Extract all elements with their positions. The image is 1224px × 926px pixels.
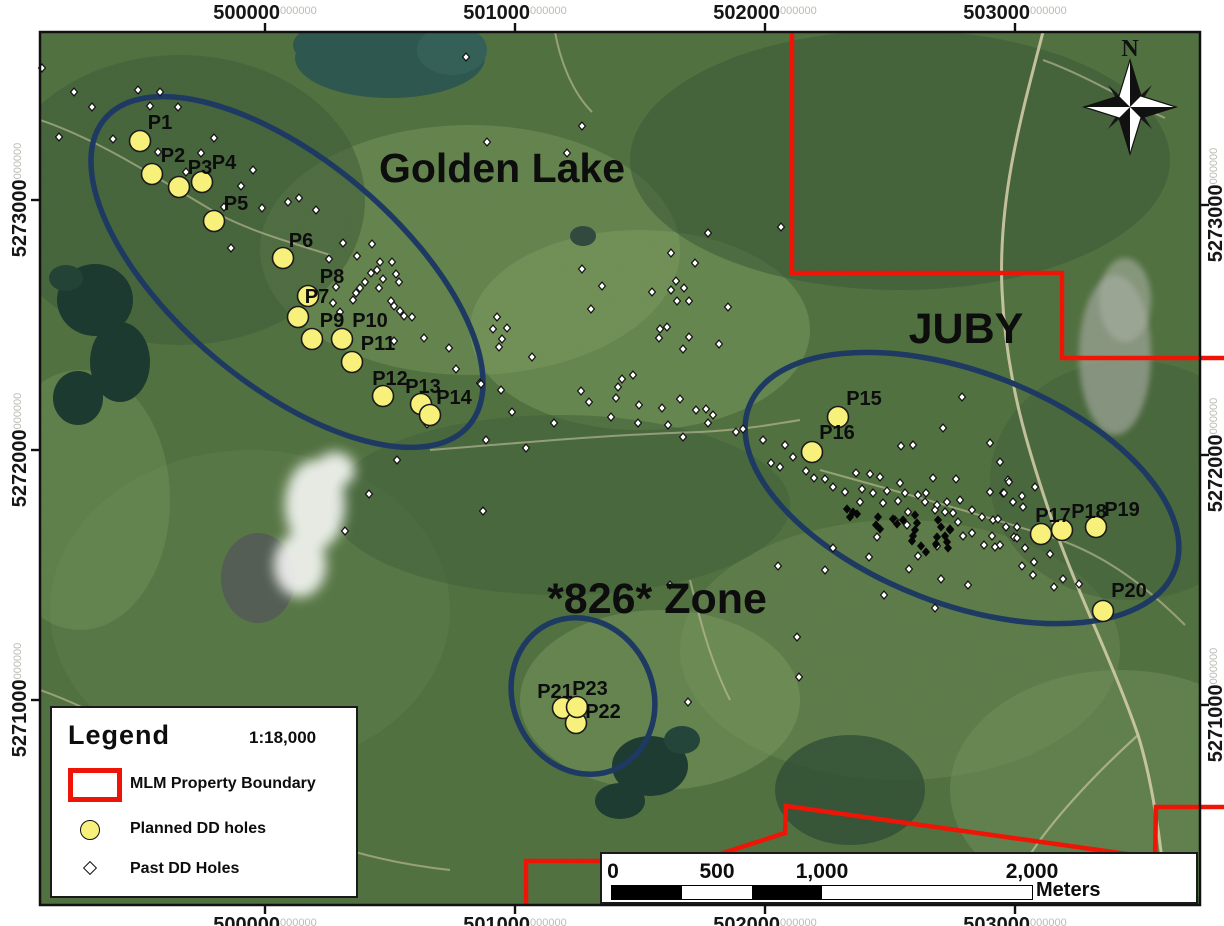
planned-hole-label-P6: P6 [289,230,313,252]
scale-bar-segment [752,886,822,899]
planned-hole-label-P16: P16 [819,422,855,444]
planned-hole-label-P22: P22 [585,701,621,723]
planned-hole-label-P11: P11 [361,333,395,355]
planned-hole-label-P3: P3 [188,157,212,179]
scale-bar-segment [822,886,1032,899]
planned-hole-label-P1: P1 [148,112,172,134]
map-scale-ratio: 1:18,000 [249,728,316,748]
planned-hole-label-P14: P14 [436,387,472,409]
planned-hole-P5 [204,211,225,232]
scale-bar-label: 1,000 [796,860,849,884]
north-label: N [1121,36,1139,62]
planned-hole-label-P20: P20 [1111,580,1147,602]
legend-item-label: MLM Property Boundary [130,775,316,793]
planned-hole-label-P18: P18 [1071,501,1107,523]
grid-label-right: 5272000000000 [1205,398,1224,513]
planned-hole-label-P10: P10 [352,310,388,332]
legend-item-planned: Planned DD holes [66,818,346,844]
scale-bar: Meters 05001,0002,000 [600,852,1198,904]
scale-bar-segments [611,885,1033,900]
scale-bar-label: 500 [699,860,734,884]
scale-bar-label: 2,000 [1006,860,1059,884]
grid-label-right: 5271000000000 [1205,648,1224,763]
scale-bar-label: 0 [607,860,619,884]
planned-hole-label-P2: P2 [161,145,185,167]
grid-label-bottom: 501000000000 [463,914,566,926]
grid-label-top: 503000000000 [963,2,1066,24]
zone-title: Golden Lake [379,145,625,191]
zone-title: JUBY [909,305,1024,353]
grid-label-left: 5272000000000 [9,393,31,508]
planned-hole-label-P23: P23 [572,678,608,700]
planned-hole-swatch [80,820,100,840]
legend-item-label: Past DD Holes [130,860,239,878]
planned-hole-label-P15: P15 [846,388,882,410]
planned-hole-label-P12: P12 [372,368,408,390]
planned-hole-P2 [142,164,163,185]
legend-title: Legend [68,720,170,751]
legend-item-past: Past DD Holes [66,858,346,884]
map-figure: P1P2P3P4P5P6P7P8P9P10P11P12P13P14P15P16P… [0,0,1224,926]
planned-hole-label-P7: P7 [305,286,329,308]
grid-label-bottom: 503000000000 [963,914,1066,926]
grid-label-bottom: 500000000000 [213,914,316,926]
planned-hole-label-P5: P5 [224,193,248,215]
planned-hole-label-P17: P17 [1035,505,1071,527]
planned-hole-label-P19: P19 [1104,499,1140,521]
grid-label-right: 5273000000000 [1205,148,1224,263]
scale-bar-segment [682,886,752,899]
grid-label-bottom: 502000000000 [713,914,816,926]
past-hole-swatch [83,861,97,875]
grid-label-top: 500000000000 [213,2,316,24]
grid-label-top: 502000000000 [713,2,816,24]
planned-hole-P8 [288,307,309,328]
planned-hole-label-P8: P8 [320,266,344,288]
planned-hole-label-P21: P21 [537,681,573,703]
planned-hole-P16 [802,442,823,463]
legend-item-label: Planned DD holes [130,820,266,838]
planned-hole-label-P9: P9 [320,310,344,332]
planned-hole-label-P4: P4 [212,152,237,174]
planned-hole-P3 [169,177,190,198]
zone-title: *826* Zone [547,575,767,623]
boundary-swatch [68,768,122,802]
planned-hole-P11 [342,352,363,373]
grid-label-left: 5273000000000 [9,143,31,258]
grid-label-left: 5271000000000 [9,643,31,758]
legend: Legend 1:18,000 MLM Property Boundary Pl… [50,706,358,898]
legend-item-boundary: MLM Property Boundary [66,768,346,802]
grid-label-top: 501000000000 [463,2,566,24]
scale-bar-segment [612,886,682,899]
planned-hole-P20 [1093,601,1114,622]
